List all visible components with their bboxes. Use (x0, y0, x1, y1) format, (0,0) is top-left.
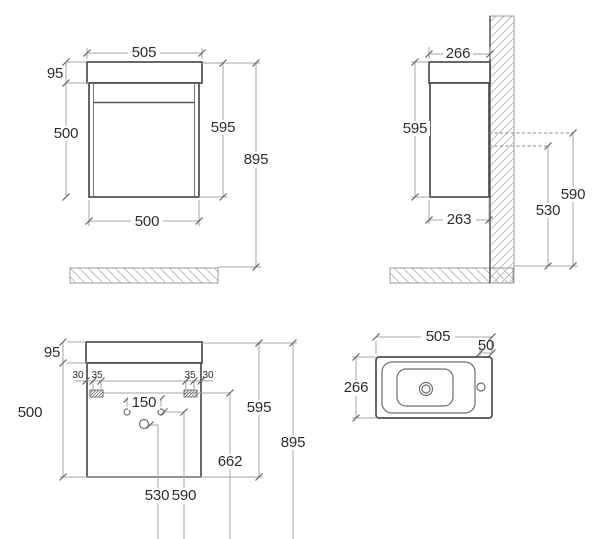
front-view: 505 95 500 595 895 500 (47, 44, 271, 283)
wall-bracket-left (90, 390, 103, 397)
dim-label-offset-right: 30 (202, 370, 214, 381)
dim-label-offset-left: 30 (72, 370, 84, 381)
dim-label-fix-low: 530 (536, 202, 560, 219)
fixing-detail-view: 95 500 30 35 35 30 150 595 662 895 530 5… (18, 339, 309, 539)
dim-label-cabinet-height: 500 (18, 404, 42, 421)
dim-label-tap-spacing: 150 (132, 394, 156, 411)
dim-label-width-top: 505 (132, 44, 156, 61)
dim-label-width-bottom: 500 (135, 213, 159, 230)
wall-bracket-right (184, 390, 197, 397)
dim-label-bracket-right: 35 (184, 370, 196, 381)
dim-label-width: 505 (426, 328, 450, 345)
technical-drawing-canvas: 505 95 500 595 895 500 266 595 263 590 5… (0, 0, 600, 539)
washbasin-front (87, 62, 202, 83)
dim-label-drain-height: 662 (218, 453, 242, 470)
dim-label-bracket-left: 35 (91, 370, 103, 381)
dim-label-unit-height: 595 (247, 399, 271, 416)
dim-label-depth-top: 266 (446, 45, 470, 62)
dim-label-depth: 266 (344, 379, 368, 396)
dim-label-tap-offset: 50 (478, 337, 494, 354)
dim-label-fix-high: 590 (172, 487, 196, 504)
dim-label-unit-height: 595 (403, 120, 427, 137)
dim-label-basin-height: 95 (44, 344, 60, 361)
dim-label-depth-bottom: 263 (447, 211, 471, 228)
cabinet-front (89, 83, 199, 197)
wall-section (490, 16, 514, 283)
cabinet-side (430, 83, 489, 197)
side-view: 266 595 263 590 530 (390, 16, 588, 283)
dim-label-fix-high: 590 (561, 186, 585, 203)
technical-drawing: 505 95 500 595 895 500 266 595 263 590 5… (0, 0, 600, 539)
floor-section (390, 268, 513, 283)
washbasin-front (86, 342, 202, 363)
dim-label-unit-height: 595 (211, 119, 235, 136)
washbasin-side (429, 62, 490, 83)
floor-section (70, 268, 218, 283)
dim-label-cabinet-height: 500 (54, 125, 78, 142)
dim-label-floor-height: 895 (281, 434, 305, 451)
dim-label-floor-height: 895 (244, 151, 268, 168)
basin-top-view: 505 50 266 (341, 328, 496, 422)
dim-label-fix-low: 530 (145, 487, 169, 504)
dim-label-basin-height: 95 (47, 65, 63, 82)
